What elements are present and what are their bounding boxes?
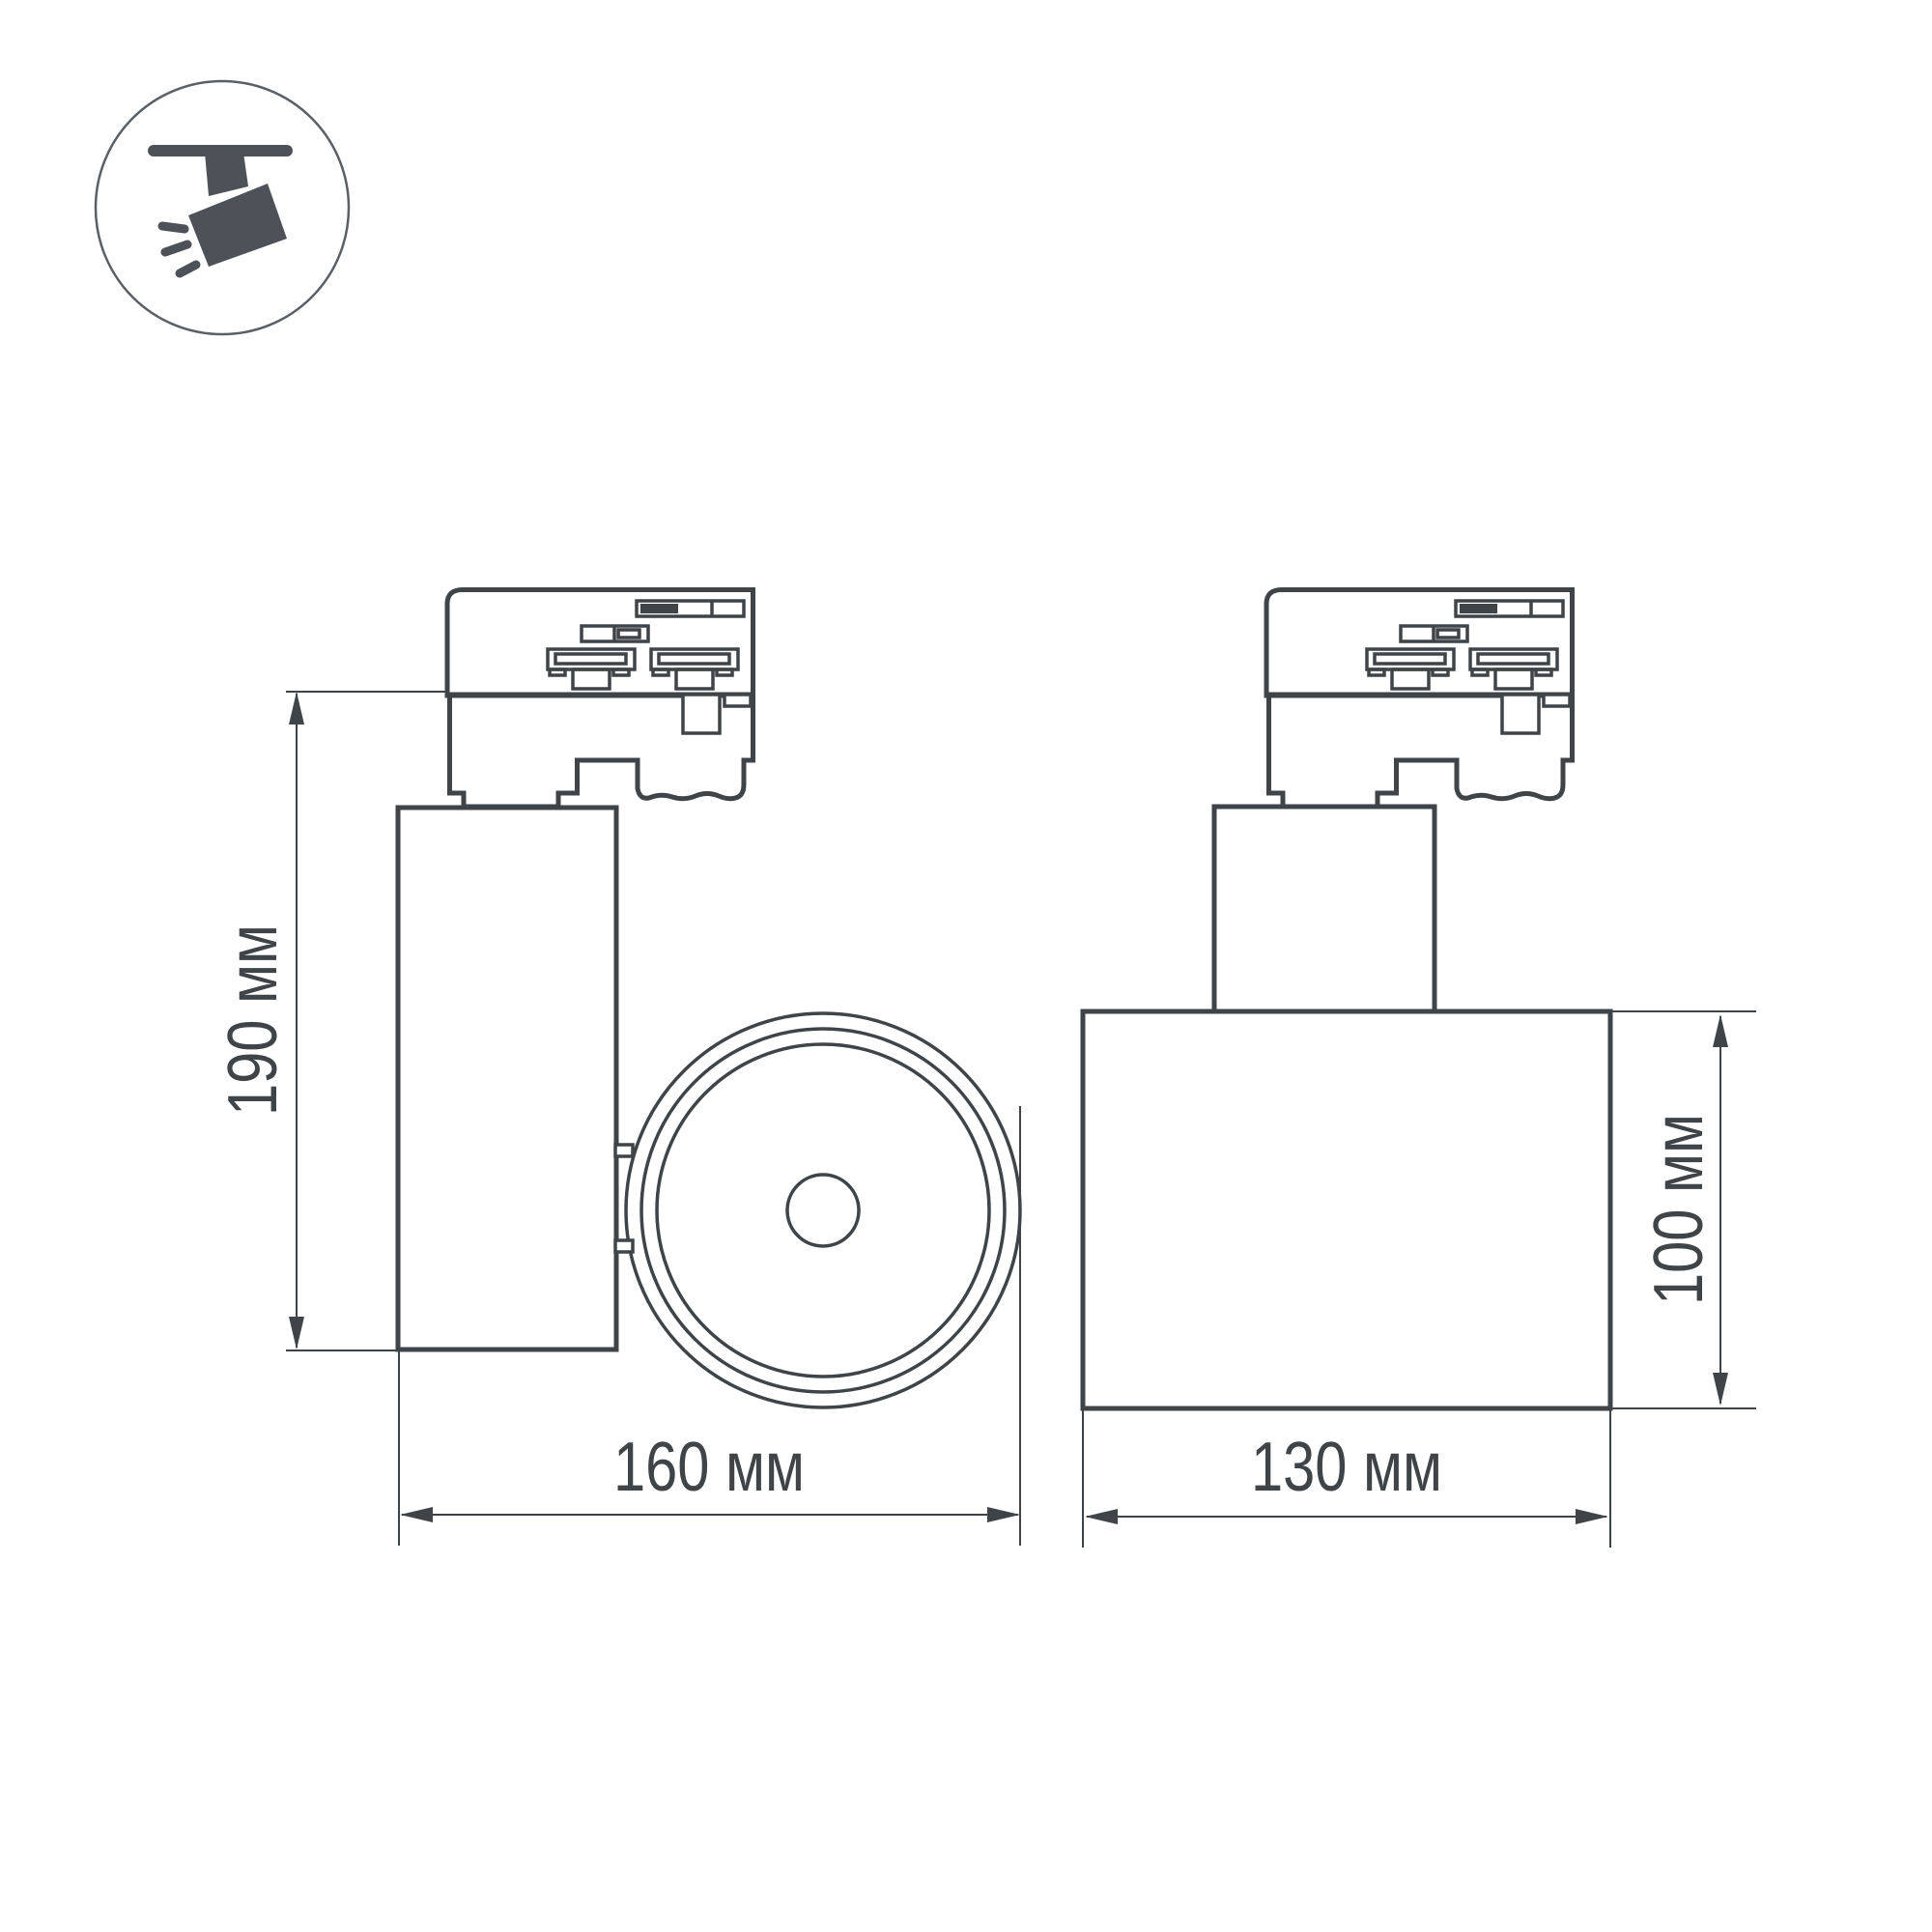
technical-drawing-track-light: 190 мм 160 мм 130 мм 100 мм — [0, 0, 1932, 1932]
side-view — [398, 590, 1020, 1408]
arrowhead-right — [1576, 1509, 1608, 1524]
dim-label-160: 160 мм — [613, 1429, 805, 1506]
dim-label-190: 190 мм — [214, 924, 292, 1116]
arrowhead-up — [1713, 1014, 1728, 1047]
side-view-lamp-body — [398, 808, 616, 1350]
side-view-hinge-tab-upper — [615, 1145, 633, 1156]
dimension-front-width: 130 мм — [1083, 1408, 1610, 1548]
side-view-hinge-tab-lower — [615, 1240, 633, 1252]
icon-light-ray-1 — [162, 226, 185, 229]
dimension-front-height: 100 мм — [1610, 1011, 1756, 1408]
arrowhead-left — [1085, 1509, 1118, 1524]
arrowhead-right — [987, 1507, 1020, 1522]
ceiling-track-spotlight-icon — [96, 81, 349, 334]
arrowhead-up — [289, 692, 304, 724]
front-view-stem — [1214, 807, 1435, 1012]
front-view — [1083, 590, 1610, 1409]
side-view-lens-outer-ring — [626, 1013, 1020, 1407]
side-view-track-adapter — [447, 590, 755, 808]
arrowhead-down — [1713, 1373, 1728, 1406]
arrowhead-left — [400, 1507, 433, 1522]
arrowhead-down — [289, 1317, 304, 1350]
dim-label-100: 100 мм — [1640, 1114, 1718, 1305]
front-view-track-adapter — [1266, 590, 1575, 808]
front-view-lamp-body — [1083, 1011, 1610, 1408]
dim-label-130: 130 мм — [1251, 1429, 1442, 1506]
